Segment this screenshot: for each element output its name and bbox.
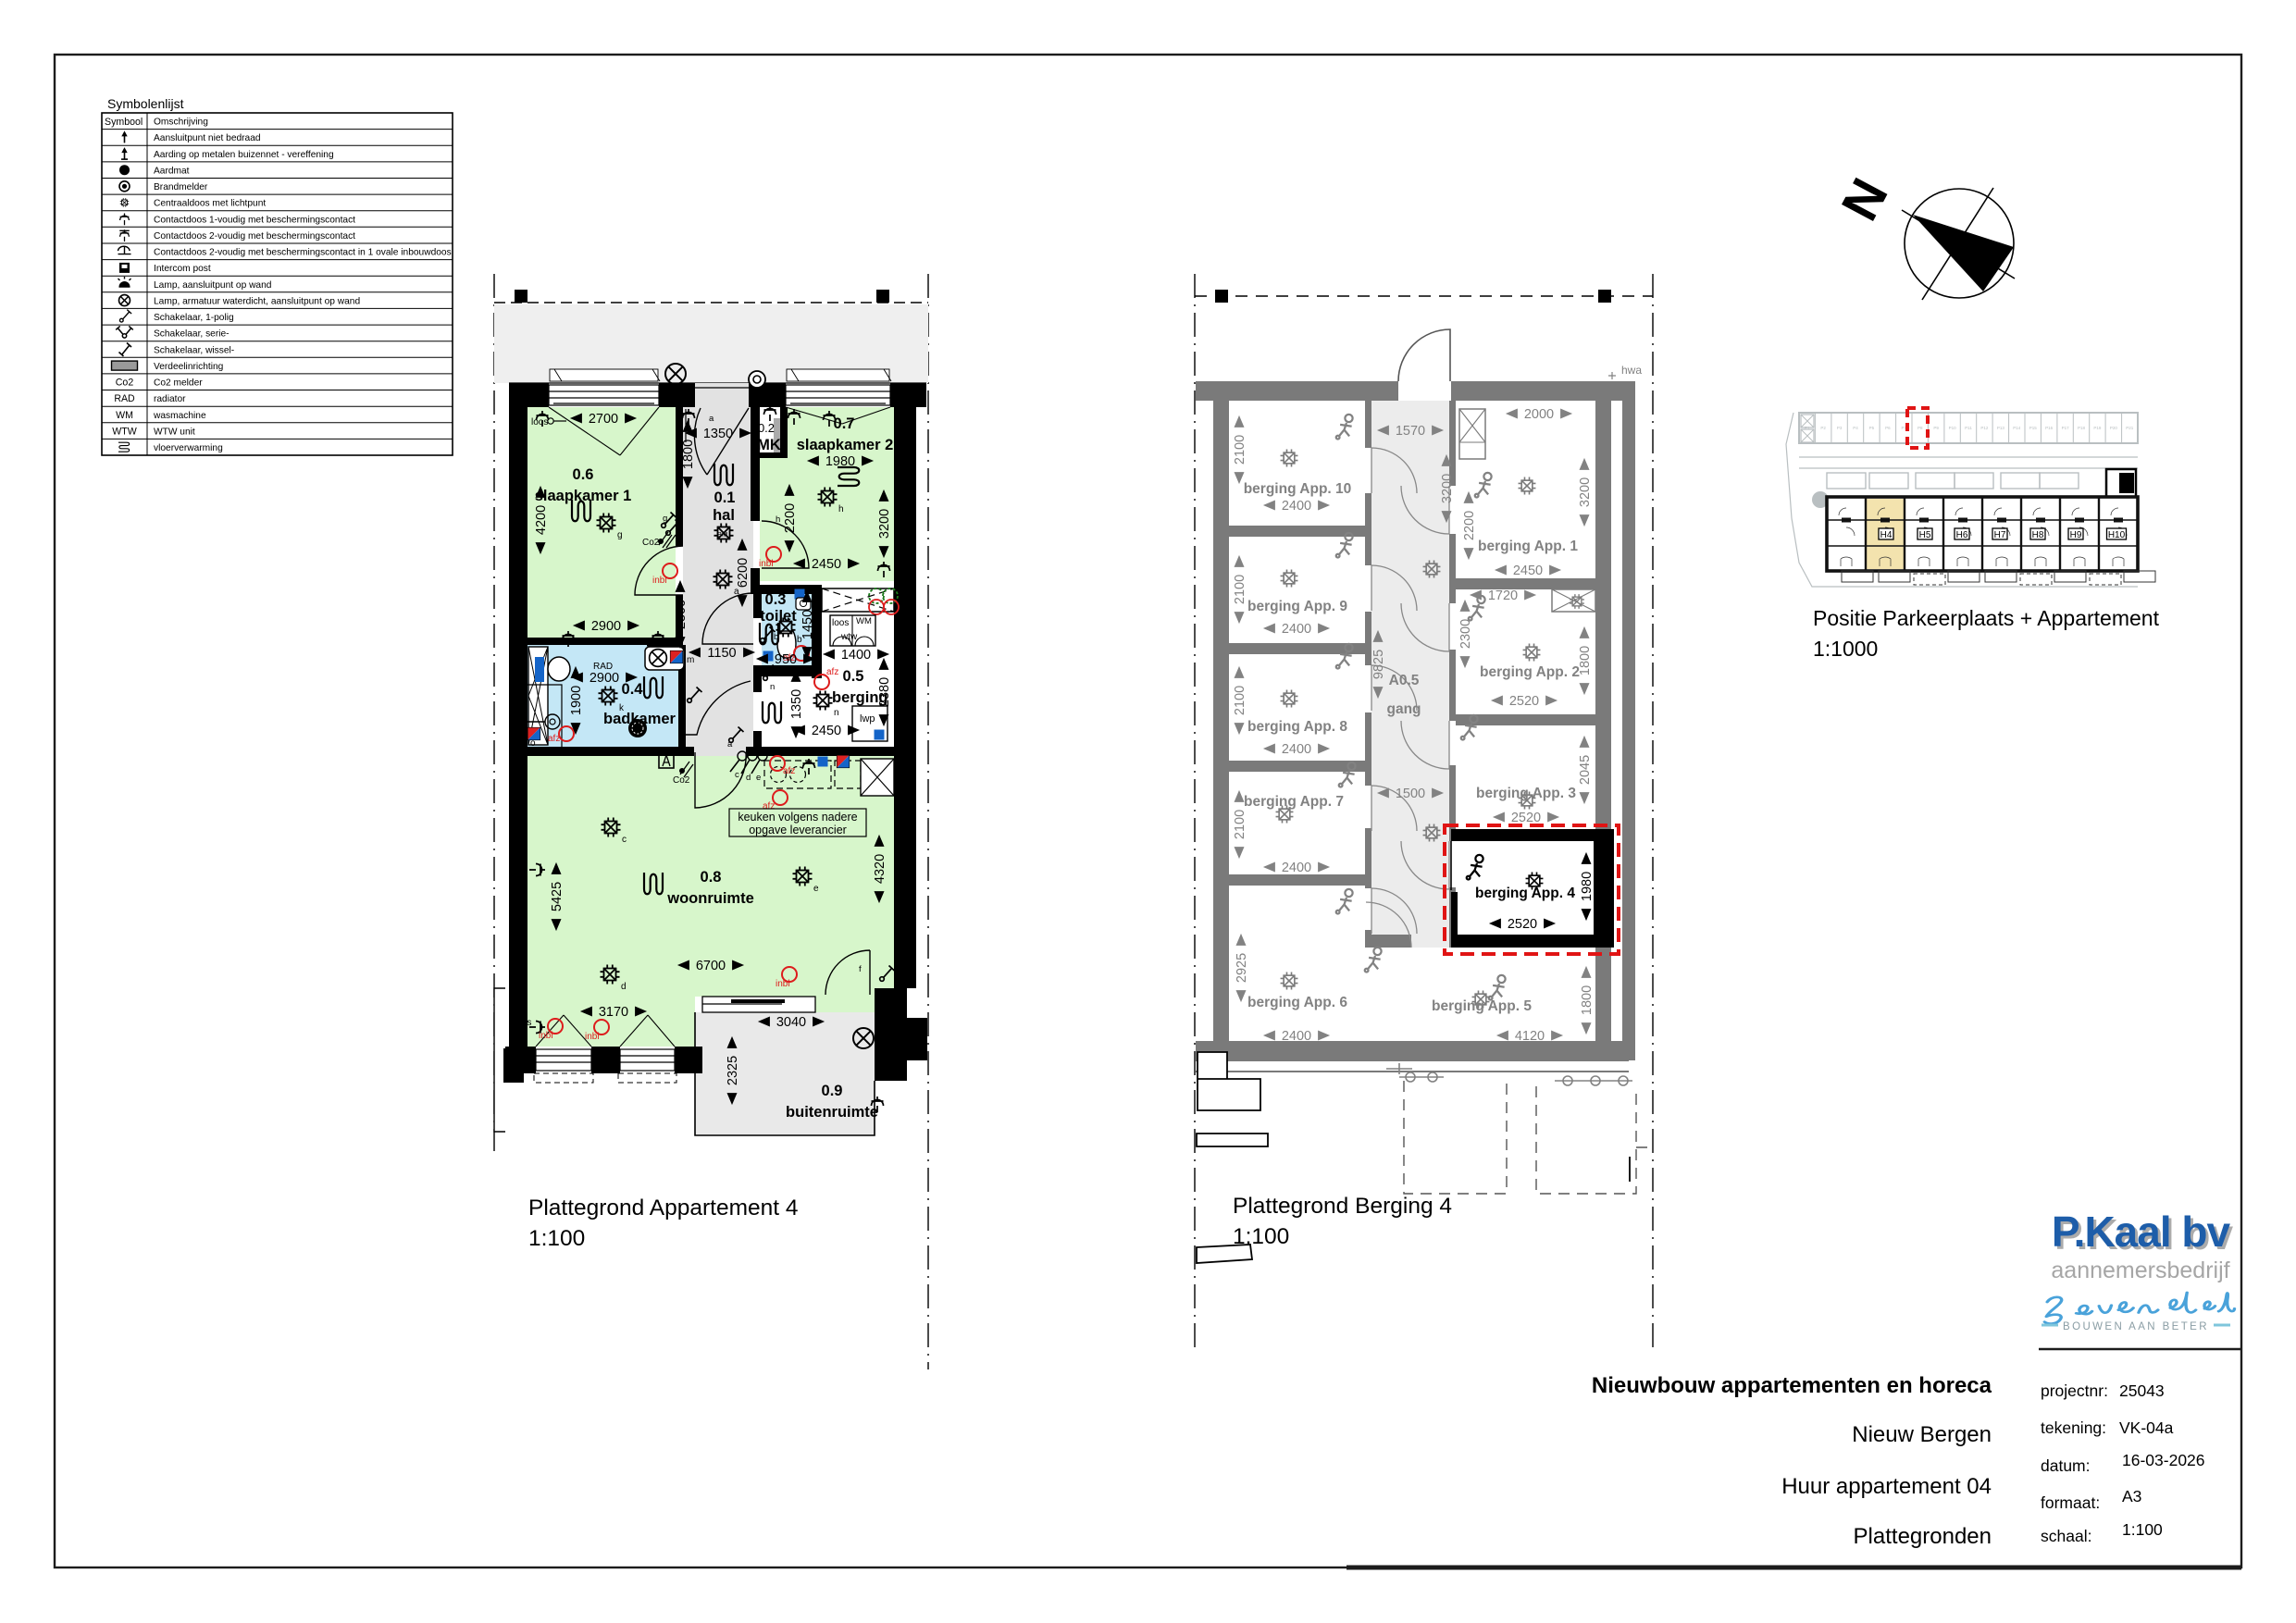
svg-text:e: e <box>813 884 819 894</box>
svg-text:hal: hal <box>713 507 735 524</box>
svg-text:MK: MK <box>757 437 781 453</box>
svg-text:1720: 1720 <box>1488 588 1518 603</box>
svg-text:P.Kaal bv: P.Kaal bv <box>2052 1208 2231 1256</box>
svg-text:2400: 2400 <box>1282 742 1311 757</box>
svg-text:Verdeelinrichting: Verdeelinrichting <box>154 362 224 372</box>
svg-text:projectnr:: projectnr: <box>2041 1381 2108 1400</box>
svg-text:1:1000: 1:1000 <box>1813 637 1878 661</box>
svg-text:0.7: 0.7 <box>834 415 855 432</box>
svg-text:Plattegronden: Plattegronden <box>1854 1524 1992 1549</box>
svg-text:3200: 3200 <box>877 509 892 539</box>
svg-text:1400: 1400 <box>841 648 871 663</box>
svg-text:c: c <box>622 835 627 845</box>
svg-text:afz: afz <box>548 734 560 744</box>
svg-text:2900: 2900 <box>591 619 621 634</box>
svg-text:vloerverwarming: vloerverwarming <box>154 443 223 453</box>
svg-text:P13: P13 <box>1997 426 2005 430</box>
svg-text:H8: H8 <box>2032 530 2044 540</box>
svg-text:4120: 4120 <box>1515 1029 1545 1044</box>
svg-text:gang: gang <box>1386 701 1421 717</box>
svg-text:25043: 25043 <box>2119 1381 2165 1400</box>
svg-text:opgave leverancier: opgave leverancier <box>749 824 847 836</box>
svg-text:16-03-2026: 16-03-2026 <box>2122 1451 2205 1469</box>
svg-text:WTW: WTW <box>112 426 136 437</box>
svg-text:inbl: inbl <box>776 979 790 989</box>
svg-text:a: a <box>709 414 714 424</box>
svg-text:A0.5: A0.5 <box>1389 673 1420 688</box>
svg-text:P20: P20 <box>2110 426 2118 430</box>
svg-text:Schakelaar, serie-: Schakelaar, serie- <box>154 329 230 340</box>
svg-text:datum:: datum: <box>2041 1456 2091 1475</box>
svg-text:1980: 1980 <box>1580 872 1595 901</box>
svg-text:BM: BM <box>717 530 727 539</box>
svg-text:1350: 1350 <box>703 427 733 441</box>
svg-text:slaapkamer 2: slaapkamer 2 <box>797 437 894 453</box>
svg-text:1:100: 1:100 <box>528 1226 585 1251</box>
svg-text:Omschrijving: Omschrijving <box>154 118 208 128</box>
svg-text:berging App. 9: berging App. 9 <box>1247 599 1347 614</box>
svg-text:berging App. 1: berging App. 1 <box>1478 539 1578 554</box>
svg-text:Symbolenlijst: Symbolenlijst <box>107 96 184 111</box>
svg-text:2450: 2450 <box>1513 564 1543 578</box>
svg-text:1350: 1350 <box>789 689 804 719</box>
svg-text:lwp: lwp <box>860 713 875 725</box>
svg-text:afz: afz <box>826 667 838 677</box>
svg-text:1:100: 1:100 <box>1233 1224 1289 1249</box>
svg-text:2400: 2400 <box>1282 499 1311 514</box>
svg-text:0.3: 0.3 <box>765 591 787 608</box>
svg-text:0.5: 0.5 <box>843 668 864 685</box>
svg-text:loos: loos <box>515 1018 531 1028</box>
svg-text:BOUWEN AAN BETER: BOUWEN AAN BETER <box>2063 1321 2209 1332</box>
svg-text:1800: 1800 <box>1578 646 1593 675</box>
svg-text:a: a <box>727 739 733 750</box>
svg-text:3200: 3200 <box>1440 474 1455 503</box>
svg-text:Co2 melder: Co2 melder <box>154 378 203 389</box>
svg-text:toilet: toilet <box>760 608 797 625</box>
svg-text:0.1: 0.1 <box>714 489 736 506</box>
svg-text:Lamp, aansluitpunt op wand: Lamp, aansluitpunt op wand <box>154 280 272 291</box>
svg-text:2200: 2200 <box>783 503 798 533</box>
svg-text:Plattegrond Appartement 4: Plattegrond Appartement 4 <box>528 1196 798 1220</box>
svg-text:2520: 2520 <box>1508 917 1537 932</box>
svg-text:Contactdoos 2-voudig met besch: Contactdoos 2-voudig met beschermingscon… <box>154 231 355 242</box>
svg-text:Co2: Co2 <box>116 378 134 389</box>
svg-text:P16: P16 <box>2045 426 2054 430</box>
svg-text:c: c <box>735 770 739 780</box>
svg-text:P10: P10 <box>1949 426 1957 430</box>
svg-text:P15: P15 <box>2029 426 2038 430</box>
svg-text:2100: 2100 <box>1233 810 1247 839</box>
svg-text:Intercom post: Intercom post <box>154 264 211 274</box>
svg-text:berging App. 6: berging App. 6 <box>1247 995 1347 1010</box>
svg-text:WM: WM <box>116 410 133 421</box>
svg-text:2300: 2300 <box>674 600 689 629</box>
svg-text:tekening:: tekening: <box>2041 1419 2106 1437</box>
svg-text:2400: 2400 <box>1282 622 1311 637</box>
svg-text:n: n <box>770 682 775 692</box>
svg-text:o: o <box>530 738 536 749</box>
svg-text:d: d <box>621 982 627 992</box>
svg-text:P21: P21 <box>2126 426 2134 430</box>
svg-text:4200: 4200 <box>534 505 549 535</box>
svg-text:P17: P17 <box>2062 426 2070 430</box>
svg-text:berging App. 2: berging App. 2 <box>1480 664 1580 680</box>
svg-text:2400: 2400 <box>1282 1029 1311 1044</box>
svg-text:2450: 2450 <box>812 557 841 572</box>
svg-text:aannemersbedrijf: aannemersbedrijf <box>2051 1258 2229 1283</box>
svg-text:Contactdoos 2-voudig met besch: Contactdoos 2-voudig met beschermingscon… <box>154 248 452 258</box>
svg-text:keuken volgens nadere: keuken volgens nadere <box>738 811 857 824</box>
svg-text:2100: 2100 <box>1233 575 1247 604</box>
svg-text:e: e <box>756 773 761 783</box>
svg-text:2100: 2100 <box>1233 435 1247 465</box>
svg-text:1500: 1500 <box>1396 787 1425 801</box>
svg-text:berging App. 8: berging App. 8 <box>1247 719 1347 735</box>
svg-text:P2: P2 <box>1820 426 1826 430</box>
svg-text:Positie Parkeerplaats + Appart: Positie Parkeerplaats + Appartement <box>1813 606 2160 630</box>
svg-text:d: d <box>746 773 751 783</box>
svg-text:Schakelaar, 1-polig: Schakelaar, 1-polig <box>154 313 234 323</box>
svg-text:berging App. 10: berging App. 10 <box>1244 481 1352 497</box>
svg-text:0.9: 0.9 <box>822 1083 843 1099</box>
svg-text:inbl: inbl <box>539 1031 553 1041</box>
svg-text:Lamp, armatuur waterdicht, aan: Lamp, armatuur waterdicht, aansluitpunt … <box>154 296 360 306</box>
svg-text:0.6: 0.6 <box>573 466 594 483</box>
svg-text:schaal:: schaal: <box>2041 1527 2091 1545</box>
svg-text:1570: 1570 <box>1396 424 1425 439</box>
svg-text:2325: 2325 <box>726 1056 740 1085</box>
svg-text:A3: A3 <box>2122 1487 2141 1505</box>
svg-text:2300: 2300 <box>1458 619 1473 649</box>
svg-text:Aardmat: Aardmat <box>154 167 190 177</box>
svg-text:radiator: radiator <box>154 394 186 404</box>
svg-text:2700: 2700 <box>589 412 618 427</box>
svg-text:m: m <box>687 655 694 665</box>
svg-text:g: g <box>663 514 667 524</box>
svg-text:1150: 1150 <box>707 646 736 661</box>
svg-text:P8: P8 <box>1917 426 1923 430</box>
svg-text:2925: 2925 <box>1235 953 1249 983</box>
svg-text:Aarding op metalen buizennet -: Aarding op metalen buizennet - vereffeni… <box>154 150 334 160</box>
svg-text:RAD: RAD <box>114 393 135 404</box>
svg-text:3040: 3040 <box>776 1015 806 1030</box>
svg-text:2520: 2520 <box>1509 694 1539 709</box>
svg-text:Huur appartement 04: Huur appartement 04 <box>1781 1474 1992 1499</box>
svg-text:badkamer: badkamer <box>603 711 676 727</box>
svg-text:P4: P4 <box>1853 426 1858 430</box>
svg-text:2450: 2450 <box>812 724 841 738</box>
svg-text:2045: 2045 <box>1578 755 1593 785</box>
svg-text:0.8: 0.8 <box>701 869 722 886</box>
svg-text:Nieuwbouw appartementen en hor: Nieuwbouw appartementen en horeca <box>1592 1373 1992 1398</box>
svg-text:WTW unit: WTW unit <box>154 427 195 437</box>
svg-text:berging App. 5: berging App. 5 <box>1432 998 1532 1014</box>
svg-text:2100: 2100 <box>1233 686 1247 715</box>
svg-text:wtw: wtw <box>840 632 858 642</box>
svg-text:2200: 2200 <box>1462 511 1477 540</box>
svg-text:WM: WM <box>856 616 872 626</box>
svg-text:woonruimte: woonruimte <box>666 890 754 907</box>
svg-text:1450: 1450 <box>800 610 815 639</box>
svg-text:0.4: 0.4 <box>622 681 644 698</box>
svg-text:H9: H9 <box>2070 530 2082 540</box>
svg-text:9825: 9825 <box>1371 650 1386 679</box>
svg-text:2400: 2400 <box>1282 861 1311 875</box>
svg-text:loos: loos <box>531 417 548 427</box>
svg-text:Aansluitpunt niet bedraad: Aansluitpunt niet bedraad <box>154 133 261 143</box>
svg-text:4320: 4320 <box>873 854 887 884</box>
svg-text:b: b <box>774 632 778 642</box>
svg-text:Co2: Co2 <box>642 538 660 548</box>
svg-text:h: h <box>776 514 780 525</box>
svg-text:Contactdoos 1-voudig met besch: Contactdoos 1-voudig met beschermingscon… <box>154 215 355 225</box>
svg-text:P14: P14 <box>2013 426 2021 430</box>
svg-text:P19: P19 <box>2093 426 2102 430</box>
svg-text:P9: P9 <box>1933 426 1939 430</box>
svg-text:berging App. 4: berging App. 4 <box>1475 886 1575 901</box>
svg-text:h: h <box>838 504 844 514</box>
svg-text:P18: P18 <box>2078 426 2086 430</box>
svg-text:Brandmelder: Brandmelder <box>154 182 208 192</box>
svg-text:Co2: Co2 <box>673 775 690 786</box>
svg-text:Nieuw Bergen: Nieuw Bergen <box>1852 1422 1992 1447</box>
svg-text:inbl: inbl <box>759 559 774 569</box>
svg-text:1800: 1800 <box>681 440 696 469</box>
svg-text:1980: 1980 <box>825 454 855 469</box>
svg-text:P12: P12 <box>1980 426 1989 430</box>
svg-text:f: f <box>859 964 862 974</box>
svg-text:berging App. 3: berging App. 3 <box>1476 786 1576 801</box>
svg-text:1900: 1900 <box>569 686 584 715</box>
svg-text:hwa: hwa <box>1621 364 1642 377</box>
svg-text:3200: 3200 <box>1578 477 1593 507</box>
svg-text:H5: H5 <box>1919 530 1931 540</box>
svg-text:2900: 2900 <box>590 671 619 686</box>
svg-text:H10: H10 <box>2108 530 2126 540</box>
svg-text:2000: 2000 <box>1524 407 1554 422</box>
svg-text:formaat:: formaat: <box>2041 1493 2100 1512</box>
svg-text:n: n <box>834 708 839 718</box>
svg-text:6200: 6200 <box>736 558 751 588</box>
svg-text:P5: P5 <box>1869 426 1875 430</box>
svg-text:H6: H6 <box>1956 530 1968 540</box>
svg-text:P6: P6 <box>1885 426 1891 430</box>
svg-text:H4: H4 <box>1880 530 1893 540</box>
svg-text:3170: 3170 <box>599 1005 628 1020</box>
svg-text:berging App. 7: berging App. 7 <box>1244 794 1344 810</box>
svg-text:950: 950 <box>775 652 797 667</box>
svg-text:Plattegrond Berging 4: Plattegrond Berging 4 <box>1233 1194 1452 1219</box>
svg-text:1:100: 1:100 <box>2122 1520 2163 1539</box>
svg-text:buitenruimte: buitenruimte <box>786 1104 878 1121</box>
svg-text:Centraaldoos met lichtpunt: Centraaldoos met lichtpunt <box>154 199 266 209</box>
svg-text:VK-04a: VK-04a <box>2119 1419 2174 1437</box>
svg-text:2380: 2380 <box>877 677 892 707</box>
svg-text:inbl: inbl <box>585 1032 600 1042</box>
svg-text:5425: 5425 <box>550 882 565 911</box>
svg-text:Symbool: Symbool <box>105 117 143 128</box>
svg-text:2520: 2520 <box>1511 811 1541 825</box>
svg-text:P3: P3 <box>1837 426 1843 430</box>
svg-text:H7: H7 <box>1994 530 2006 540</box>
svg-text:Schakelaar, wissel-: Schakelaar, wissel- <box>154 345 234 355</box>
svg-text:6700: 6700 <box>696 959 726 973</box>
svg-text:g: g <box>617 530 623 540</box>
svg-text:wasmachine: wasmachine <box>153 411 206 421</box>
svg-text:0.2: 0.2 <box>758 421 775 435</box>
svg-text:slaapkamer 1: slaapkamer 1 <box>535 488 632 504</box>
svg-text:1800: 1800 <box>1580 985 1595 1015</box>
svg-text:loos: loos <box>832 618 849 628</box>
svg-text:P11: P11 <box>1965 426 1972 430</box>
svg-text:inbl: inbl <box>652 576 667 586</box>
svg-text:afz: afz <box>783 766 795 776</box>
